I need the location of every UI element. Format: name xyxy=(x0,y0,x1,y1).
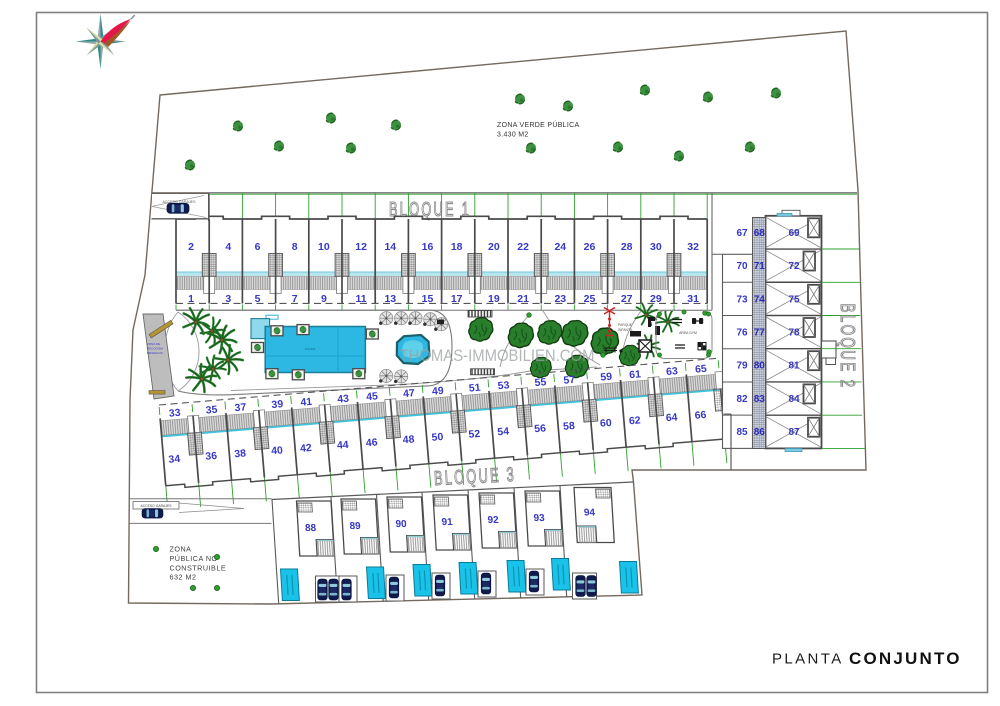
svg-text:55: 55 xyxy=(534,376,547,389)
svg-text:50: 50 xyxy=(431,431,444,444)
svg-text:22: 22 xyxy=(517,241,529,253)
svg-text:79: 79 xyxy=(736,361,748,372)
svg-text:1: 1 xyxy=(188,293,194,305)
svg-text:8: 8 xyxy=(292,241,298,253)
svg-text:3: 3 xyxy=(225,293,231,305)
svg-text:37: 37 xyxy=(234,401,247,414)
svg-text:83: 83 xyxy=(754,394,766,405)
svg-text:85: 85 xyxy=(736,427,748,438)
svg-text:13: 13 xyxy=(384,293,396,305)
svg-text:57: 57 xyxy=(563,374,576,387)
svg-text:81: 81 xyxy=(788,361,800,372)
svg-text:68: 68 xyxy=(754,228,766,239)
svg-text:66: 66 xyxy=(694,409,707,422)
svg-text:45: 45 xyxy=(366,390,379,403)
svg-text:62: 62 xyxy=(628,414,641,427)
svg-text:39: 39 xyxy=(271,398,284,411)
svg-text:10: 10 xyxy=(318,241,330,253)
svg-text:56: 56 xyxy=(534,422,547,435)
svg-text:RESIDUOS: RESIDUOS xyxy=(147,351,163,355)
svg-text:6: 6 xyxy=(255,241,261,253)
svg-text:4: 4 xyxy=(225,241,231,253)
svg-text:90: 90 xyxy=(395,519,407,530)
svg-text:17: 17 xyxy=(451,293,463,305)
svg-text:BLOQUE 2: BLOQUE 2 xyxy=(836,304,858,390)
svg-text:67: 67 xyxy=(736,228,748,239)
svg-text:58: 58 xyxy=(563,420,576,433)
svg-text:46: 46 xyxy=(365,436,378,449)
svg-text:87: 87 xyxy=(788,427,800,438)
svg-text:ZONA: ZONA xyxy=(170,545,192,554)
svg-text:43: 43 xyxy=(337,393,350,406)
svg-text:ACCESO GARAJES: ACCESO GARAJES xyxy=(140,504,172,508)
svg-text:RECOGIDA: RECOGIDA xyxy=(147,347,163,351)
svg-text:28: 28 xyxy=(621,241,633,253)
svg-text:59: 59 xyxy=(600,371,613,384)
svg-text:74: 74 xyxy=(754,294,766,305)
svg-text:60: 60 xyxy=(600,417,613,430)
svg-text:9: 9 xyxy=(321,293,327,305)
svg-text:54: 54 xyxy=(497,425,510,438)
svg-text:94: 94 xyxy=(584,508,596,519)
svg-text:26: 26 xyxy=(584,241,596,253)
svg-text:52: 52 xyxy=(468,428,481,441)
svg-text:632 M2: 632 M2 xyxy=(170,573,197,582)
svg-text:BLOQUE 1: BLOQUE 1 xyxy=(389,199,471,221)
svg-text:PLANTA: PLANTA xyxy=(772,651,844,668)
svg-text:88: 88 xyxy=(305,523,317,534)
svg-text:PÚBLICA NO: PÚBLICA NO xyxy=(170,554,218,563)
svg-text:BLOQUE 3: BLOQUE 3 xyxy=(433,464,516,490)
svg-text:ZONA DE: ZONA DE xyxy=(147,342,160,346)
svg-text:2: 2 xyxy=(188,241,194,253)
svg-text:14: 14 xyxy=(384,241,396,253)
svg-text:AREA GYM: AREA GYM xyxy=(679,331,697,335)
svg-text:THOMAS-IMMOBILIEN.COM: THOMAS-IMMOBILIEN.COM xyxy=(400,346,595,365)
svg-text:91: 91 xyxy=(441,517,453,528)
svg-text:51: 51 xyxy=(468,382,481,395)
svg-text:65: 65 xyxy=(695,363,708,376)
svg-text:36: 36 xyxy=(205,450,218,463)
svg-text:15: 15 xyxy=(422,293,434,305)
svg-text:80: 80 xyxy=(754,361,766,372)
svg-text:12: 12 xyxy=(355,241,367,253)
svg-text:24: 24 xyxy=(554,241,566,253)
svg-text:73: 73 xyxy=(736,294,748,305)
svg-text:49: 49 xyxy=(431,385,444,398)
svg-text:30: 30 xyxy=(650,241,662,253)
svg-text:38: 38 xyxy=(234,447,247,460)
svg-text:64: 64 xyxy=(665,411,678,424)
svg-text:53: 53 xyxy=(497,379,510,392)
svg-text:77: 77 xyxy=(754,327,766,338)
svg-text:27: 27 xyxy=(621,293,633,305)
svg-text:86: 86 xyxy=(754,427,766,438)
svg-text:82: 82 xyxy=(736,394,748,405)
svg-text:71: 71 xyxy=(754,261,766,272)
svg-text:5: 5 xyxy=(255,293,261,305)
svg-text:40: 40 xyxy=(271,444,284,457)
svg-text:23: 23 xyxy=(554,293,566,305)
svg-text:34: 34 xyxy=(168,453,181,466)
svg-text:3.430 M2: 3.430 M2 xyxy=(497,132,529,139)
svg-text:20: 20 xyxy=(488,241,500,253)
svg-text:76: 76 xyxy=(736,327,748,338)
svg-text:31: 31 xyxy=(687,293,699,305)
svg-text:48: 48 xyxy=(402,433,415,446)
svg-text:33: 33 xyxy=(168,407,181,420)
svg-text:16: 16 xyxy=(422,241,434,253)
svg-text:CONJUNTO: CONJUNTO xyxy=(849,649,962,668)
svg-text:21: 21 xyxy=(517,293,529,305)
svg-text:41: 41 xyxy=(300,396,313,409)
svg-text:35: 35 xyxy=(205,404,218,417)
svg-text:19: 19 xyxy=(488,293,500,305)
svg-text:61: 61 xyxy=(629,368,642,381)
svg-text:29: 29 xyxy=(650,293,662,305)
svg-text:44: 44 xyxy=(336,439,349,452)
svg-text:75: 75 xyxy=(788,294,800,305)
svg-text:PARQUE: PARQUE xyxy=(618,323,633,327)
svg-text:PISCINA: PISCINA xyxy=(305,347,316,351)
svg-text:11: 11 xyxy=(356,293,367,305)
svg-text:32: 32 xyxy=(687,241,699,253)
svg-text:18: 18 xyxy=(451,241,463,253)
svg-text:63: 63 xyxy=(666,365,679,378)
svg-text:89: 89 xyxy=(349,521,361,532)
svg-text:72: 72 xyxy=(788,261,800,272)
svg-text:25: 25 xyxy=(584,293,596,305)
svg-text:7: 7 xyxy=(292,293,298,305)
svg-text:93: 93 xyxy=(533,513,545,524)
svg-text:69: 69 xyxy=(788,228,800,239)
svg-text:84: 84 xyxy=(788,394,800,405)
svg-text:92: 92 xyxy=(487,515,499,526)
svg-text:70: 70 xyxy=(736,261,748,272)
svg-text:CONSTRUIBLE: CONSTRUIBLE xyxy=(170,564,227,573)
svg-text:78: 78 xyxy=(788,327,800,338)
svg-text:47: 47 xyxy=(403,387,416,400)
svg-text:ZONA VERDE PÚBLICA: ZONA VERDE PÚBLICA xyxy=(497,120,579,129)
svg-text:42: 42 xyxy=(300,442,313,455)
